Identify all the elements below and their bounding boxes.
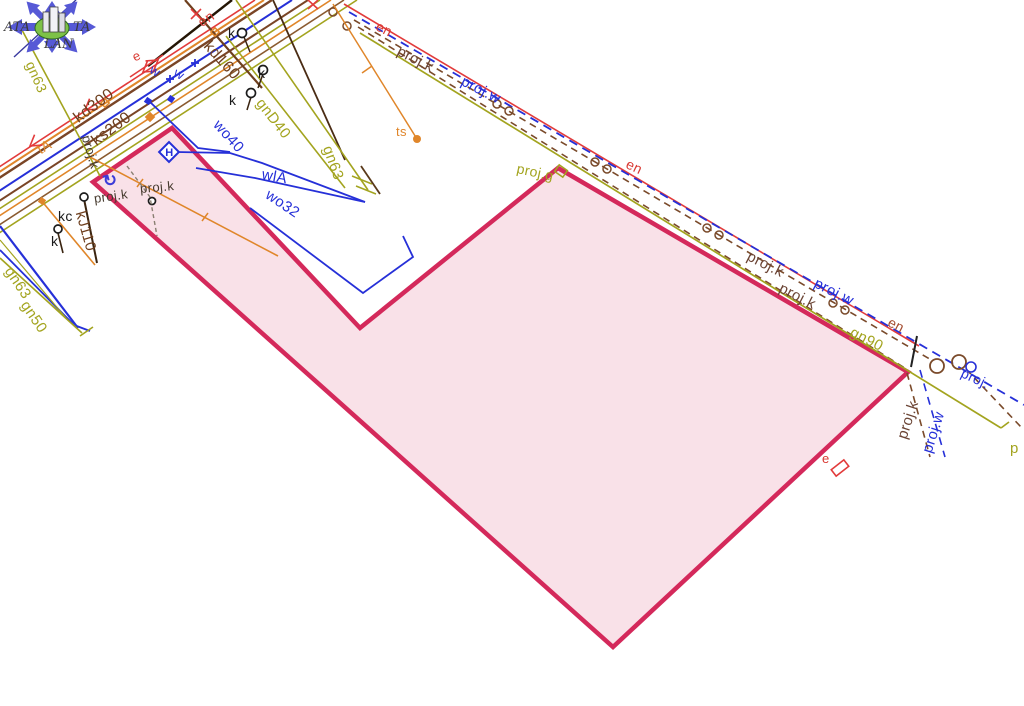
- label-k-2: k: [258, 66, 265, 80]
- logo-text-right: TA: [73, 21, 90, 34]
- label-p-bottomright: p: [1010, 441, 1019, 456]
- label-k-3: k: [229, 93, 236, 107]
- map-canvas[interactable]: H: [0, 0, 1024, 706]
- label-k-1: k: [228, 26, 235, 40]
- label-ts: ts: [396, 125, 407, 138]
- label-wlA: wlA: [261, 167, 289, 186]
- label-projk-left-1: proj.k: [93, 187, 129, 205]
- label-e-b: e: [822, 452, 830, 465]
- label-projk-left-2: proj.k: [139, 179, 174, 195]
- logo-text-bottom: LAN: [44, 38, 73, 51]
- label-k-4: k: [51, 234, 58, 248]
- transformer-symbol: [831, 460, 849, 476]
- parcel-polygon[interactable]: [93, 128, 908, 647]
- logo-text-left: ATA: [4, 21, 30, 34]
- label-kc: kc: [58, 209, 73, 223]
- map-linework: H: [0, 0, 1024, 706]
- hydrant-glyph: H: [165, 147, 173, 159]
